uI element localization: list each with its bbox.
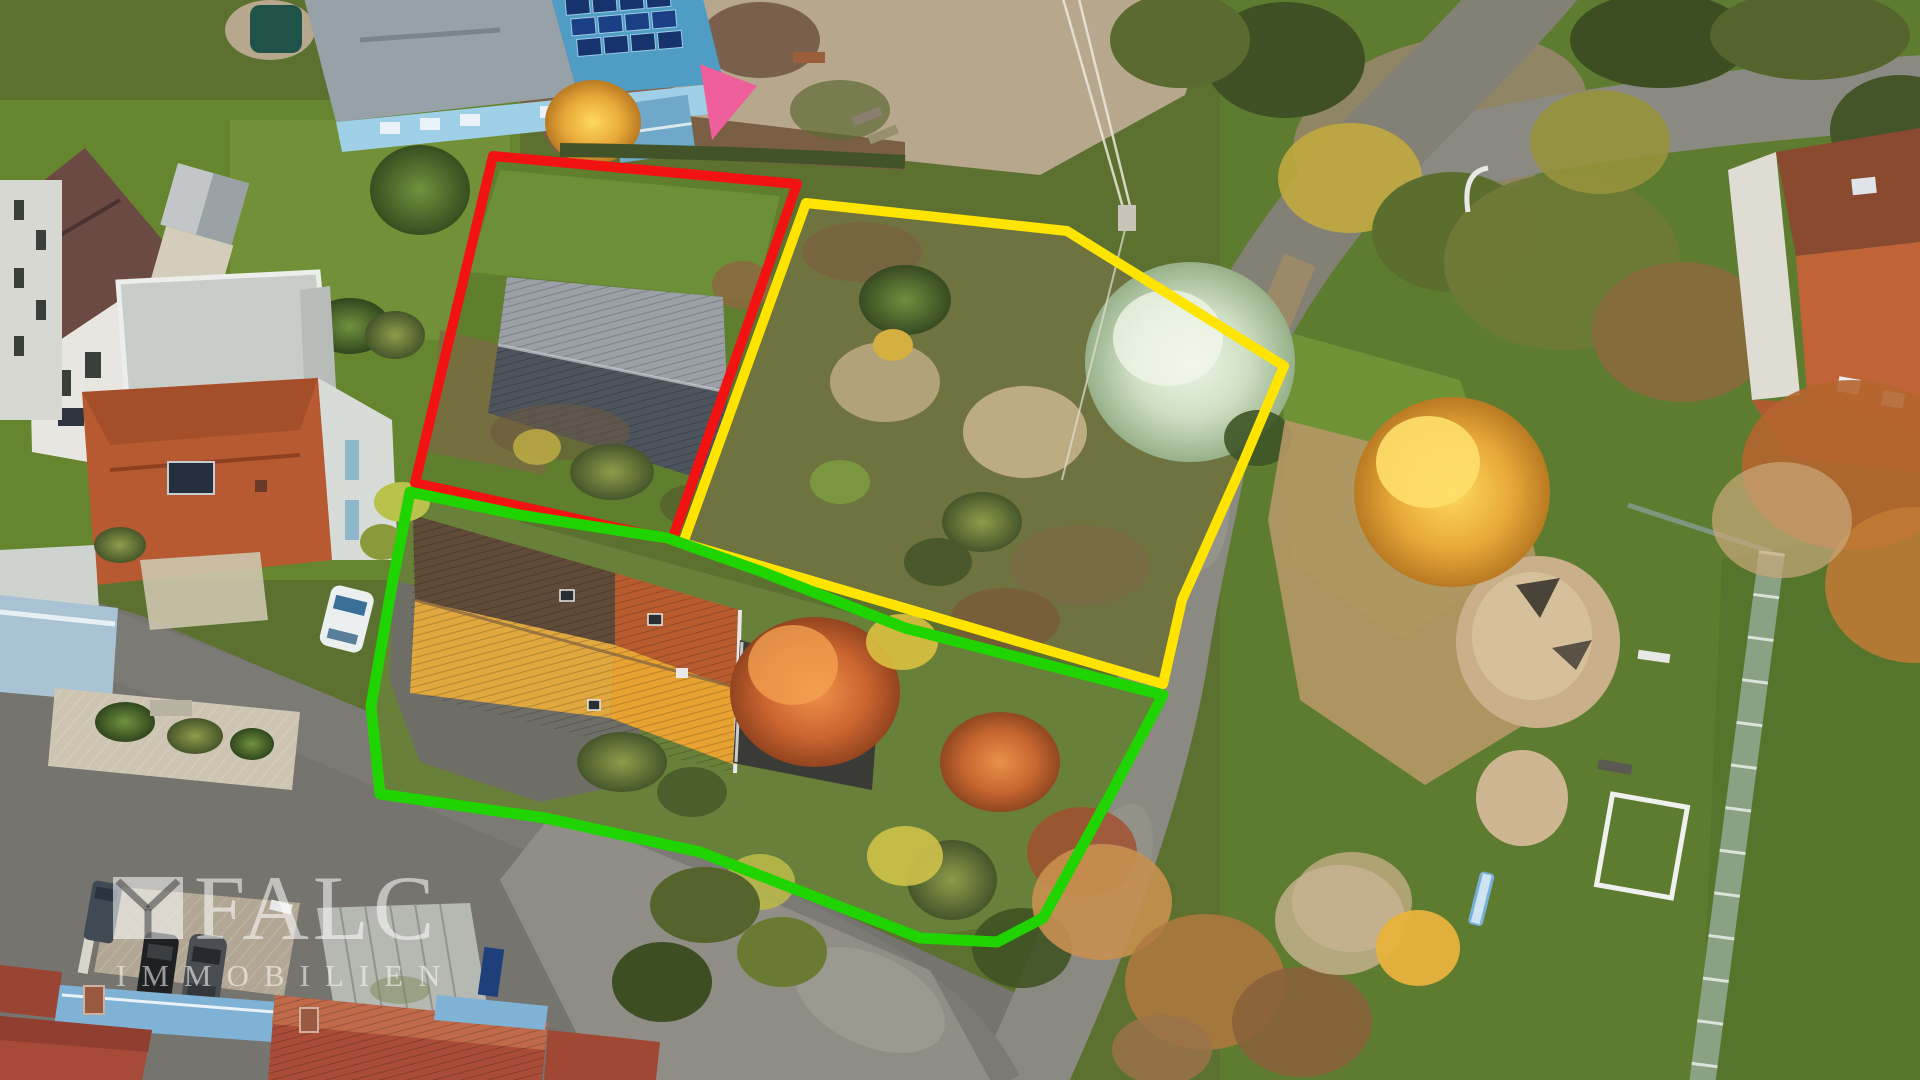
bare-tree xyxy=(963,386,1087,478)
orange-bush xyxy=(1376,910,1460,986)
sand-pit xyxy=(1476,750,1568,846)
white-apartment-building xyxy=(0,180,62,420)
trampoline xyxy=(250,5,302,53)
shrub xyxy=(859,265,951,335)
bush xyxy=(570,444,654,500)
chimney xyxy=(84,986,104,1014)
solar-water-panel xyxy=(168,462,214,494)
power-pole xyxy=(1118,205,1136,231)
steps xyxy=(150,700,192,716)
skylight xyxy=(560,590,574,601)
falc-logo-mark xyxy=(112,876,184,940)
chimney xyxy=(255,480,267,492)
stone-terrace xyxy=(140,552,268,630)
watermark-subtitle: IMMOBILIEN xyxy=(116,960,455,991)
skylight xyxy=(648,614,662,625)
watermark: FALC IMMOBILIEN xyxy=(112,862,455,991)
bench xyxy=(793,52,825,63)
tree xyxy=(370,145,470,235)
blue-white-building xyxy=(0,595,118,702)
watermark-brand: FALC xyxy=(194,862,438,954)
chimney xyxy=(300,1008,318,1032)
aerial-photo: FALC IMMOBILIEN xyxy=(0,0,1920,1080)
planter-bush xyxy=(95,702,155,742)
